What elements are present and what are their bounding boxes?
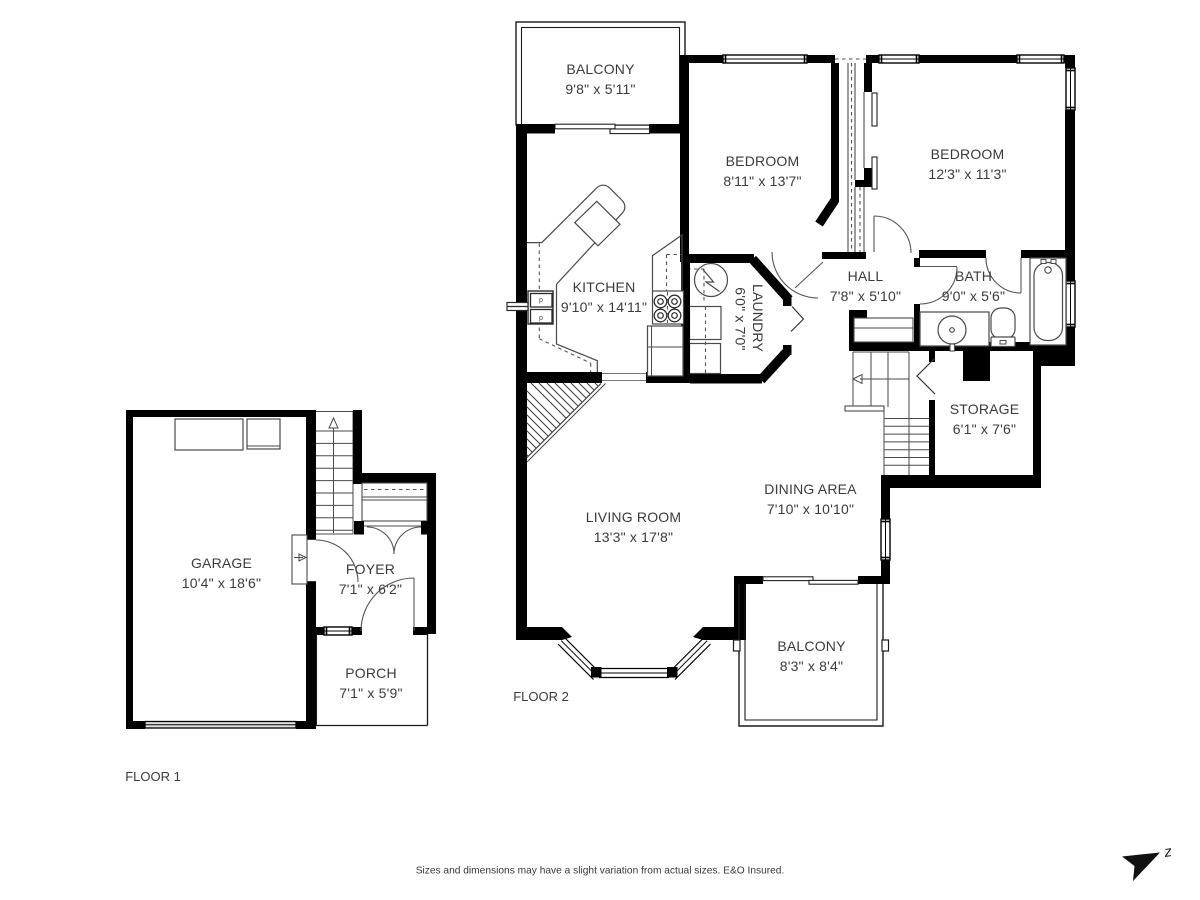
svg-text:6'1" x 7'6": 6'1" x 7'6": [953, 421, 1016, 437]
svg-text:LIVING ROOM: LIVING ROOM: [586, 509, 682, 525]
svg-text:DINING AREA: DINING AREA: [764, 481, 857, 497]
svg-text:FOYER: FOYER: [346, 561, 395, 577]
svg-text:9'8" x 5'11": 9'8" x 5'11": [565, 81, 635, 97]
svg-text:13'3" x 17'8": 13'3" x 17'8": [594, 529, 673, 545]
svg-text:6'0" x 7'0": 6'0" x 7'0": [733, 287, 749, 350]
svg-text:HALL: HALL: [848, 268, 884, 284]
svg-text:7'8" x 5'10": 7'8" x 5'10": [830, 288, 901, 304]
svg-text:STORAGE: STORAGE: [950, 401, 1020, 417]
svg-text:LAUNDRY: LAUNDRY: [750, 284, 766, 353]
svg-text:BALCONY: BALCONY: [777, 638, 846, 654]
svg-text:p: p: [539, 297, 543, 304]
svg-text:10'4" x 18'6": 10'4" x 18'6": [182, 575, 261, 591]
svg-text:12'3" x 11'3": 12'3" x 11'3": [928, 166, 1006, 182]
svg-text:9'0" x 5'6": 9'0" x 5'6": [942, 288, 1005, 304]
svg-text:7'1" x 5'9": 7'1" x 5'9": [339, 685, 402, 701]
svg-text:9'10" x 14'11": 9'10" x 14'11": [561, 299, 647, 315]
svg-text:KITCHEN: KITCHEN: [573, 279, 636, 295]
svg-text:p: p: [539, 315, 543, 322]
svg-text:BALCONY: BALCONY: [566, 61, 635, 77]
svg-text:8'11" x 13'7": 8'11" x 13'7": [723, 173, 801, 189]
svg-text:7'1" x 6'2": 7'1" x 6'2": [339, 581, 402, 597]
svg-text:FLOOR 2: FLOOR 2: [513, 689, 569, 704]
svg-text:FLOOR 1: FLOOR 1: [125, 769, 181, 784]
svg-text:BEDROOM: BEDROOM: [726, 153, 800, 169]
svg-text:Sizes and dimensions may have: Sizes and dimensions may have a slight v…: [416, 866, 785, 877]
svg-text:7'10" x 10'10": 7'10" x 10'10": [767, 501, 854, 517]
svg-text:BATH: BATH: [955, 268, 992, 284]
svg-text:GARAGE: GARAGE: [191, 555, 252, 571]
svg-text:BEDROOM: BEDROOM: [931, 146, 1005, 162]
svg-text:PORCH: PORCH: [345, 665, 397, 681]
svg-text:8'3" x 8'4": 8'3" x 8'4": [780, 658, 843, 674]
